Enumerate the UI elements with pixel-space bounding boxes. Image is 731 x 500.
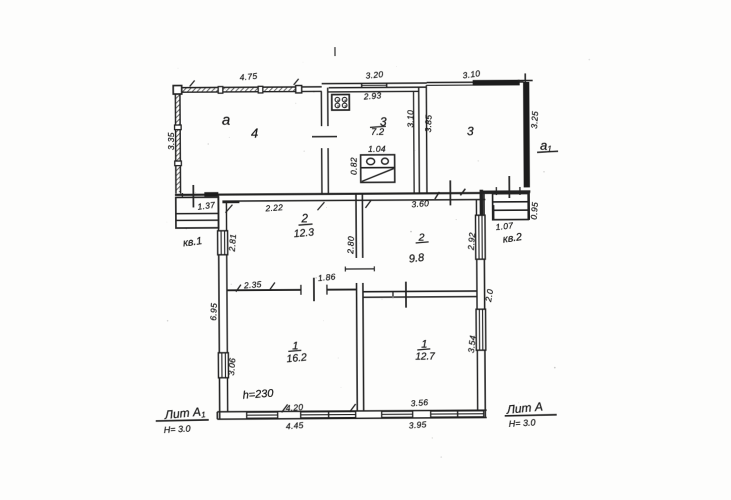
- svg-text:4.75: 4.75: [239, 71, 258, 83]
- svg-text:1.04: 1.04: [368, 144, 386, 154]
- svg-text:12.3: 12.3: [293, 226, 315, 240]
- svg-text:9.8: 9.8: [408, 252, 425, 266]
- svg-text:1.86: 1.86: [317, 271, 336, 283]
- svg-text:3.20: 3.20: [365, 69, 384, 81]
- svg-text:h=230: h=230: [242, 387, 275, 401]
- svg-text:7.2: 7.2: [371, 127, 385, 138]
- svg-text:Н= 3.0: Н= 3.0: [164, 423, 191, 435]
- svg-text:2.93: 2.93: [362, 90, 381, 101]
- svg-text:4: 4: [251, 126, 258, 141]
- svg-text:6.95: 6.95: [208, 303, 219, 321]
- svg-text:2.22: 2.22: [264, 202, 283, 213]
- svg-text:3.56: 3.56: [410, 397, 428, 408]
- svg-text:0.95: 0.95: [529, 202, 540, 221]
- svg-text:12.7: 12.7: [415, 351, 435, 362]
- svg-text:4.45: 4.45: [285, 420, 303, 431]
- svg-text:3: 3: [467, 124, 474, 138]
- svg-text:3.06: 3.06: [226, 357, 237, 376]
- svg-text:3.54: 3.54: [466, 335, 478, 354]
- svg-text:а: а: [222, 112, 230, 129]
- svg-text:кв.1: кв.1: [182, 235, 203, 249]
- svg-text:4.20: 4.20: [285, 402, 303, 413]
- svg-text:3.60: 3.60: [411, 198, 429, 209]
- svg-text:2.92: 2.92: [466, 232, 477, 251]
- svg-text:2.81: 2.81: [227, 233, 238, 252]
- svg-text:0.82: 0.82: [349, 157, 359, 175]
- svg-text:3.95: 3.95: [408, 419, 426, 430]
- svg-text:Н= 3.0: Н= 3.0: [508, 417, 535, 429]
- svg-text:16.2: 16.2: [286, 351, 308, 365]
- svg-text:2.80: 2.80: [345, 236, 356, 255]
- svg-text:3.35: 3.35: [166, 132, 176, 150]
- svg-text:1.07: 1.07: [495, 220, 514, 232]
- svg-text:3.85: 3.85: [423, 115, 434, 133]
- svg-text:2.35: 2.35: [243, 279, 262, 290]
- svg-text:2: 2: [300, 213, 308, 225]
- svg-text:3.25: 3.25: [529, 111, 540, 129]
- svg-text:1.37: 1.37: [197, 200, 216, 212]
- svg-text:3.10: 3.10: [405, 110, 415, 128]
